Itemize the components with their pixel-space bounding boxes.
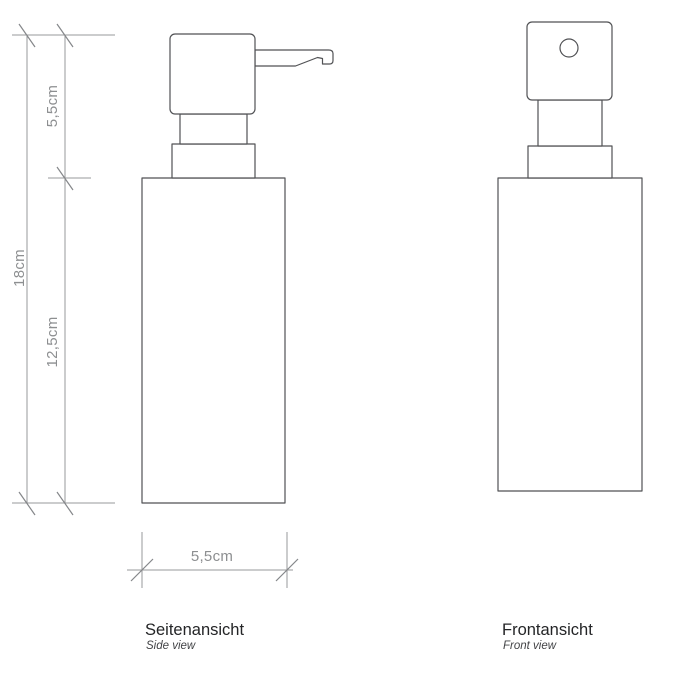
body-height-label: 12,5cm xyxy=(44,317,61,368)
width-dimension-group: 5,5cm xyxy=(127,532,298,588)
side-view-title: Seitenansicht xyxy=(145,621,244,639)
pump-collar-front xyxy=(528,146,612,178)
pump-head-front xyxy=(527,22,612,100)
captions: Seitenansicht Side view Frontansicht Fro… xyxy=(145,621,593,652)
pump-neck-side xyxy=(180,114,247,144)
dimension-diagram: 5,5cm 18cm 12,5cm 5,5cm xyxy=(0,0,700,700)
pump-collar-side xyxy=(172,144,255,178)
body-width-label: 5,5cm xyxy=(191,548,233,565)
bottle-body-front xyxy=(498,178,642,491)
bottle-body-side xyxy=(142,178,285,503)
spout-nozzle-hole xyxy=(560,39,578,57)
pump-head-side xyxy=(170,34,255,114)
front-view-drawing xyxy=(498,22,642,491)
pump-spout-side xyxy=(255,50,333,66)
height-dimension-group: 5,5cm 18cm 12,5cm xyxy=(11,24,115,515)
side-view-drawing xyxy=(142,34,333,503)
technical-drawing-canvas: 5,5cm 18cm 12,5cm 5,5cm xyxy=(0,0,700,700)
front-view-subtitle: Front view xyxy=(503,640,557,652)
pump-neck-front xyxy=(538,100,602,146)
total-height-label: 18cm xyxy=(11,249,28,287)
front-view-title: Frontansicht xyxy=(502,621,593,639)
side-view-subtitle: Side view xyxy=(146,640,196,652)
pump-height-label: 5,5cm xyxy=(44,85,61,127)
